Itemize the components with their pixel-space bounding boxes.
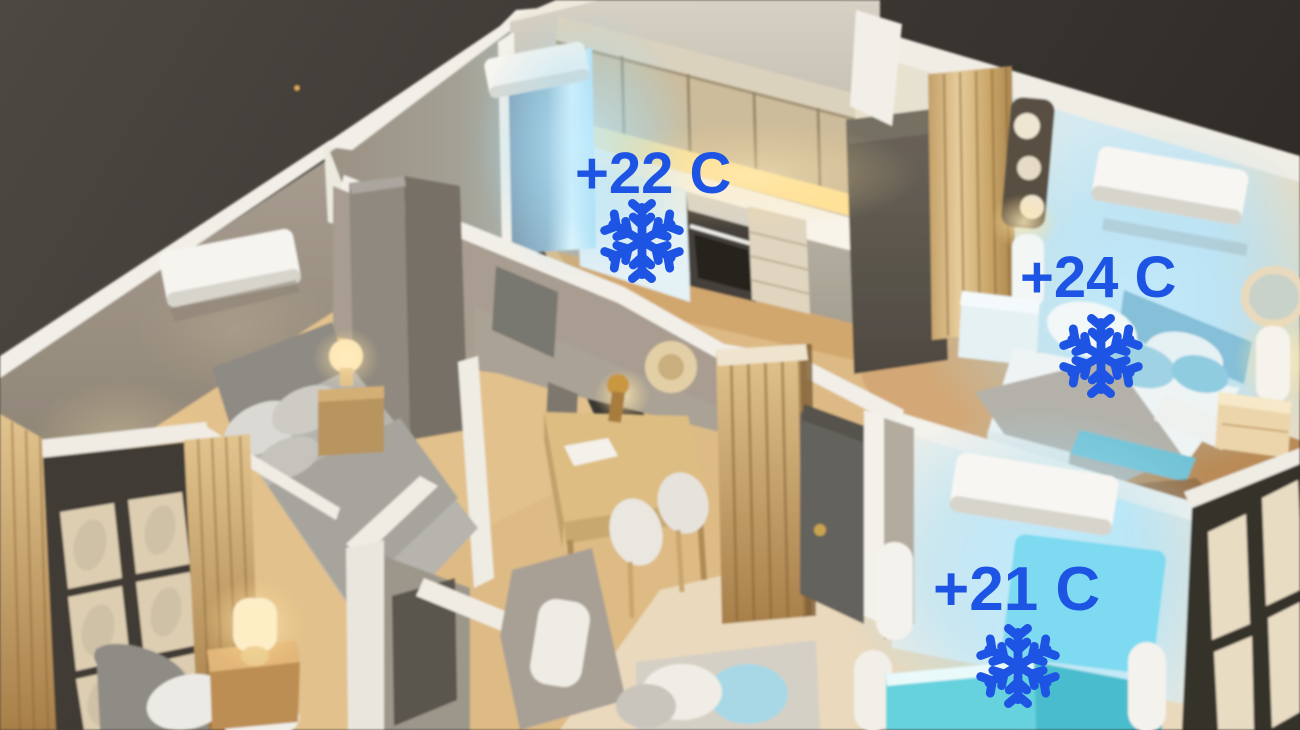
svg-text:+24 C: +24 C	[1020, 245, 1176, 310]
svg-text:+22 C: +22 C	[575, 141, 731, 206]
svg-text:+21 C: +21 C	[933, 555, 1100, 624]
